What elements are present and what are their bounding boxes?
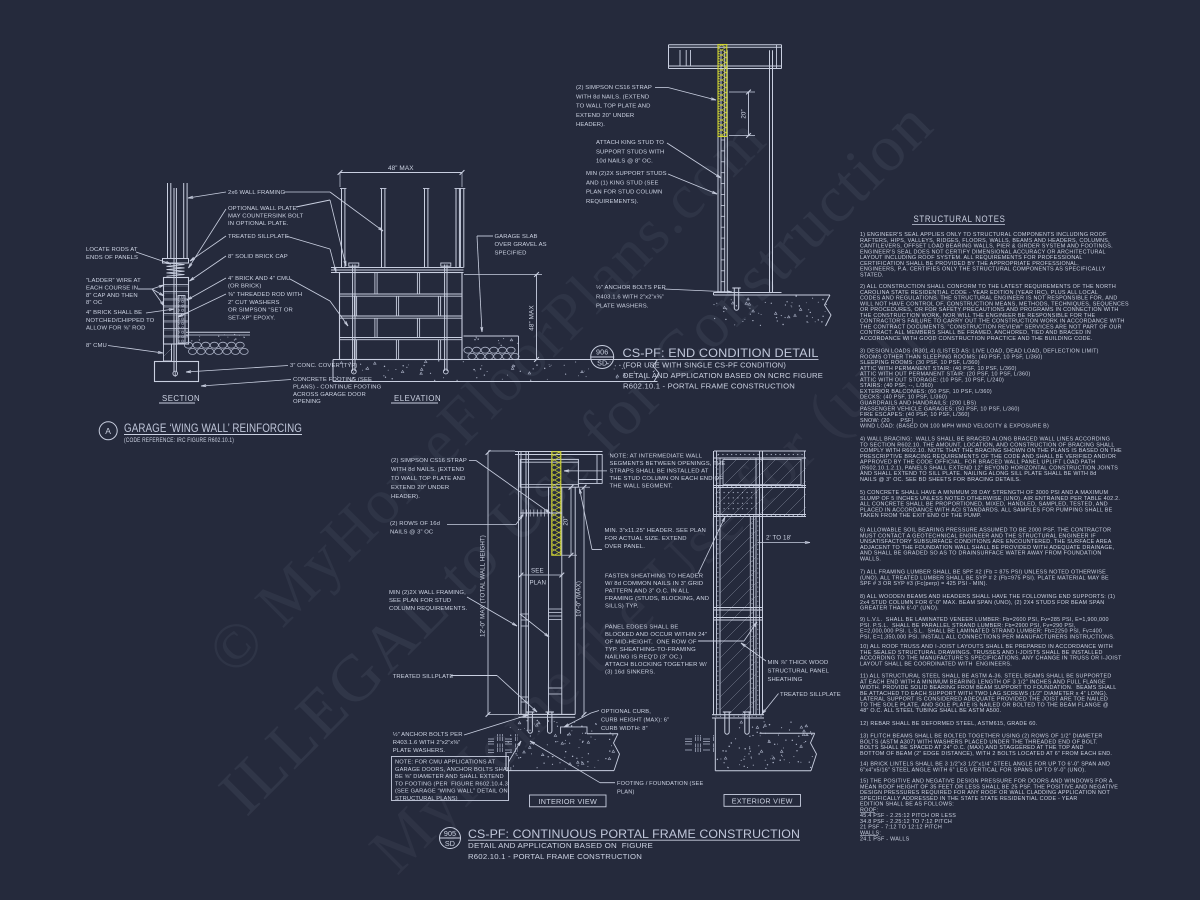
svg-text:(SEE GARAGE “WING WALL” DETAIL: (SEE GARAGE “WING WALL” DETAIL ON	[395, 789, 508, 795]
svg-text:24.1 PSF - WALLS: 24.1 PSF - WALLS	[860, 836, 910, 842]
svg-text:NOTE: FOR CMU APPLICATIONS AT: NOTE: FOR CMU APPLICATIONS AT	[395, 760, 496, 766]
svg-text:GARAGE SLAB: GARAGE SLAB	[495, 234, 538, 240]
svg-text:PATTERN AND 3” O.C. IN ALL: PATTERN AND 3” O.C. IN ALL	[605, 589, 690, 595]
svg-text:OF MID-HEIGHT. ONE ROW OF: OF MID-HEIGHT. ONE ROW OF	[605, 640, 697, 646]
svg-text:8” CMU: 8” CMU	[86, 343, 107, 349]
svg-text:ENDS OF PANELS: ENDS OF PANELS	[86, 255, 138, 261]
svg-text:MIN. 3”x11.25” HEADER. SEE PLA: MIN. 3”x11.25” HEADER. SEE PLAN	[605, 528, 706, 534]
svg-text:GREATER THAN 6'-0” (UNO).: GREATER THAN 6'-0” (UNO).	[860, 606, 939, 612]
svg-text:8” OC: 8” OC	[86, 300, 103, 306]
svg-text:(FOR USE WITH SINGLE CS-PF CON: (FOR USE WITH SINGLE CS-PF CONDITION)	[623, 361, 786, 370]
svg-text:TYP. SHEATHING-TO-FRAMING: TYP. SHEATHING-TO-FRAMING	[605, 647, 696, 653]
svg-text:“LADDER” WIRE AT: “LADDER” WIRE AT	[86, 278, 141, 284]
svg-text:STRAPS SHALL BE INSTALLED AT: STRAPS SHALL BE INSTALLED AT	[610, 469, 709, 475]
svg-text:48” O.C. ALL STEEL TUBING SHAL: 48” O.C. ALL STEEL TUBING SHALL BE ASTM …	[860, 708, 1001, 714]
svg-text:SD: SD	[597, 359, 607, 368]
svg-text:TREATED SILLPLATE: TREATED SILLPLATE	[393, 674, 454, 680]
svg-text:FRAMING (STUDS, BLOCKING, AND: FRAMING (STUDS, BLOCKING, AND	[605, 596, 709, 602]
svg-text:PLAN: PLAN	[530, 580, 547, 587]
svg-text:8” CAP AND THEN: 8” CAP AND THEN	[86, 293, 138, 299]
svg-text:NAILS @ 3” OC. SEE BD SHEETS F: NAILS @ 3” OC. SEE BD SHEETS FOR BRACING…	[860, 477, 1021, 483]
svg-text:48” MAX: 48” MAX	[529, 305, 536, 331]
svg-text:LAYOUT SHALL BE COORDINATED WI: LAYOUT SHALL BE COORDINATED WITH ENGINEE…	[860, 661, 1012, 667]
svg-text:THE WALL SEGMENT.: THE WALL SEGMENT.	[610, 484, 674, 490]
svg-text:FOOTING / FOUNDATION (SEE: FOOTING / FOUNDATION (SEE	[617, 781, 703, 787]
svg-text:COLUMN REQUIREMENTS.: COLUMN REQUIREMENTS.	[389, 606, 468, 612]
svg-text:TO WALL TOP PLATE AND: TO WALL TOP PLATE AND	[576, 104, 650, 110]
svg-text:(3) 16d SINKERS.: (3) 16d SINKERS.	[605, 670, 655, 676]
svg-text:8” SOLID BRICK CAP: 8” SOLID BRICK CAP	[228, 254, 288, 260]
svg-text:R403.1.6 WITH 2”x2”x⅜”: R403.1.6 WITH 2”x2”x⅜”	[596, 294, 664, 300]
svg-text:½” ANCHOR BOLTS PER: ½” ANCHOR BOLTS PER	[596, 284, 666, 291]
svg-text:EXTERIOR VIEW: EXTERIOR VIEW	[732, 796, 793, 805]
svg-text:SD: SD	[445, 839, 455, 848]
svg-text:CURB HEIGHT (MAX): 6”: CURB HEIGHT (MAX): 6”	[601, 717, 669, 723]
svg-text:PLATE WASHERS.: PLATE WASHERS.	[596, 304, 649, 310]
svg-text:OPTIONAL CURB,: OPTIONAL CURB,	[601, 709, 651, 715]
svg-text:OPTIONAL WALL PLATE.: OPTIONAL WALL PLATE.	[228, 206, 299, 212]
svg-text:4” BRICK SHALL BE: 4” BRICK SHALL BE	[86, 310, 142, 316]
svg-text:TAKEN FROM THE EXIT END OF THE: TAKEN FROM THE EXIT END OF THE PUMP.	[860, 513, 982, 519]
svg-text:CS-PF: CONTINUOUS PORTAL FRAME: CS-PF: CONTINUOUS PORTAL FRAME CONSTRUCT…	[468, 827, 800, 841]
svg-text:WITH 8d NAILS. (EXTEND: WITH 8d NAILS. (EXTEND	[391, 467, 464, 473]
svg-text:GARAGE DOORS, ANCHOR BOLTS SHA: GARAGE DOORS, ANCHOR BOLTS SHALL	[395, 767, 513, 773]
svg-text:SUPPORT STUDS WITH: SUPPORT STUDS WITH	[596, 149, 664, 155]
svg-text:ACCORDANCE WITH GOOD CONSTRUCT: ACCORDANCE WITH GOOD CONSTRUCTION PRACTI…	[860, 336, 1092, 342]
svg-text:4” BRICK AND 4” CMU: 4” BRICK AND 4” CMU	[228, 276, 290, 282]
svg-text:PLAN FOR STUD COLUMN: PLAN FOR STUD COLUMN	[586, 190, 662, 196]
svg-text:A: A	[105, 426, 111, 436]
svg-text:EXTEND 20” UNDER: EXTEND 20” UNDER	[391, 485, 449, 491]
svg-text:WITH 8d NAILS. (EXTEND: WITH 8d NAILS. (EXTEND	[576, 94, 649, 100]
svg-text:FASTEN SHEATHING TO HEADER: FASTEN SHEATHING TO HEADER	[605, 574, 703, 580]
svg-text:2” CUT WASHERS: 2” CUT WASHERS	[228, 300, 279, 306]
svg-text:PSI, E=1,350,000 PSI. INSTALL: PSI, E=1,350,000 PSI. INSTALL ALL CONNEC…	[860, 634, 1115, 640]
svg-text:IN OPTIONAL PLATE.: IN OPTIONAL PLATE.	[228, 221, 289, 227]
svg-text:6”x4”x5/16” STEEL ANGLE WITH 6: 6”x4”x5/16” STEEL ANGLE WITH 6” LEG VERT…	[860, 767, 1086, 773]
svg-text:(2) ROWS OF 16d: (2) ROWS OF 16d	[390, 521, 440, 527]
svg-text:NAILING IS REQ'D (3” OC.): NAILING IS REQ'D (3” OC.)	[605, 655, 682, 661]
svg-text:ACROSS GARAGE DOOR: ACROSS GARAGE DOOR	[293, 392, 366, 398]
svg-text:FOR ACTUAL SIZE. EXTEND: FOR ACTUAL SIZE. EXTEND	[605, 536, 687, 542]
svg-text:EACH COURSE IN: EACH COURSE IN	[86, 285, 138, 291]
svg-text:SECTION: SECTION	[162, 394, 200, 403]
svg-text:TREATED SILLPLATE: TREATED SILLPLATE	[780, 692, 841, 698]
svg-text:906: 906	[596, 348, 608, 357]
svg-text:3” CONC. COVER (TYP): 3” CONC. COVER (TYP)	[290, 363, 357, 369]
svg-text:SEE PLAN FOR STUD: SEE PLAN FOR STUD	[389, 598, 451, 604]
svg-text:BLOCKED AND OCCUR WITHIN 24”: BLOCKED AND OCCUR WITHIN 24”	[605, 632, 707, 638]
svg-text:MIN (2)2X SUPPORT STUDS: MIN (2)2X SUPPORT STUDS	[586, 171, 667, 177]
svg-text:R403.1.6 WITH 2”x2”x⅜”: R403.1.6 WITH 2”x2”x⅜”	[393, 740, 461, 746]
svg-text:SEE: SEE	[531, 568, 544, 575]
svg-text:AND (1) KING STUD (SEE: AND (1) KING STUD (SEE	[586, 180, 659, 186]
svg-text:STRUCTURAL NOTES: STRUCTURAL NOTES	[914, 214, 1006, 225]
svg-text:⅜” THREADED ROD WITH: ⅜” THREADED ROD WITH	[228, 292, 302, 298]
svg-text:STRUCTURAL PLANS): STRUCTURAL PLANS)	[395, 796, 458, 802]
svg-text:2x6 WALL FRAMING: 2x6 WALL FRAMING	[228, 190, 285, 196]
svg-text:MIN ⅞” THICK WOOD: MIN ⅞” THICK WOOD	[768, 660, 829, 666]
svg-text:2' TO 18': 2' TO 18'	[766, 535, 791, 542]
svg-text:MAY COUNTERSINK BOLT: MAY COUNTERSINK BOLT	[228, 214, 304, 220]
svg-text:SHEATHING: SHEATHING	[768, 677, 803, 683]
svg-text:CS-PF: END CONDITION DETAIL: CS-PF: END CONDITION DETAIL	[623, 346, 819, 360]
svg-text:TO FOOTING (PER FIGURE R602.1: TO FOOTING (PER FIGURE R602.10.4.3	[395, 781, 508, 787]
svg-text:OR SIMPSON “SET OR: OR SIMPSON “SET OR	[228, 308, 293, 314]
svg-text:ENGINEERS, P.A. CERTIFIES ONLY: ENGINEERS, P.A. CERTIFIES ONLY THE STRUC…	[860, 267, 1106, 273]
svg-text:10'-0” (MAX): 10'-0” (MAX)	[576, 581, 583, 617]
svg-text:R602.10.1 - PORTAL FRAME CONST: R602.10.1 - PORTAL FRAME CONSTRUCTION	[623, 381, 795, 390]
svg-text:MIN (2)2X WALL FRAMING,: MIN (2)2X WALL FRAMING,	[389, 590, 466, 596]
svg-text:OVER GRAVEL AS: OVER GRAVEL AS	[495, 242, 547, 248]
svg-text:R602.10.1 - PORTAL FRAME CONST: R602.10.1 - PORTAL FRAME CONSTRUCTION	[468, 852, 642, 861]
svg-text:(2) SIMPSON CS16 STRAP: (2) SIMPSON CS16 STRAP	[391, 458, 467, 464]
svg-text:ATTACH BLOCKING TOGETHER W/: ATTACH BLOCKING TOGETHER W/	[605, 662, 707, 668]
svg-text:20”: 20”	[741, 109, 748, 118]
svg-text:48” MAX: 48” MAX	[388, 165, 414, 172]
svg-text:20”: 20”	[563, 516, 570, 525]
svg-text:CURB WIDTH: 8”: CURB WIDTH: 8”	[601, 726, 648, 732]
svg-text:ELEVATION: ELEVATION	[394, 394, 441, 403]
svg-text:SPECIFIED: SPECIFIED	[495, 250, 527, 256]
svg-text:HEADER).: HEADER).	[576, 122, 605, 128]
svg-text:BE ⅝” DIAMETER AND SHALL EXTEN: BE ⅝” DIAMETER AND SHALL EXTEND	[395, 774, 504, 780]
svg-text:STATED.: STATED.	[860, 273, 884, 279]
svg-text:(CODE REFERENCE: IRC FIGURE R6: (CODE REFERENCE: IRC FIGURE R602.10.1)	[124, 438, 234, 444]
svg-text:WALLS.: WALLS.	[860, 556, 881, 562]
svg-text:NOTCHED/CHIPPED TO: NOTCHED/CHIPPED TO	[86, 318, 155, 324]
svg-text:PLAN): PLAN)	[617, 789, 635, 795]
svg-text:OPENING: OPENING	[293, 399, 321, 405]
svg-text:SET-XP” EPOXY.: SET-XP” EPOXY.	[228, 315, 275, 321]
svg-text:SPF # 3 OR SYP #3 (Fc(perp) =: SPF # 3 OR SYP #3 (Fc(perp) = 425 PSI - …	[860, 581, 987, 587]
svg-text:LOCATE RODS AT: LOCATE RODS AT	[86, 247, 138, 253]
svg-text:INTERIOR VIEW: INTERIOR VIEW	[538, 797, 597, 806]
svg-text:PANEL EDGES SHALL BE: PANEL EDGES SHALL BE	[605, 625, 679, 631]
svg-text:PLANS) - CONTINUE FOOTING: PLANS) - CONTINUE FOOTING	[293, 384, 382, 390]
svg-text:BOTTOM OF BEAM (2” EDGE DISTAN: BOTTOM OF BEAM (2” EDGE DISTANCE), WITH …	[860, 751, 1112, 757]
svg-text:½” ANCHOR BOLTS PER: ½” ANCHOR BOLTS PER	[393, 731, 463, 738]
svg-text:10d NAILS @ 8” OC.: 10d NAILS @ 8” OC.	[596, 159, 653, 165]
svg-text:THE STUD COLUMN ON EACH END OF: THE STUD COLUMN ON EACH END OF	[610, 476, 724, 482]
svg-text:EXTEND 20” UNDER: EXTEND 20” UNDER	[576, 113, 634, 119]
svg-text:NAILS @ 3” OC: NAILS @ 3” OC	[390, 529, 434, 535]
svg-text:ALLOW FOR ⅝” ROD: ALLOW FOR ⅝” ROD	[86, 326, 146, 332]
svg-text:DETAIL AND APPLICATION BASED O: DETAIL AND APPLICATION BASED ON FIGURE	[468, 841, 653, 850]
svg-text:ATTACH KING STUD TO: ATTACH KING STUD TO	[596, 140, 664, 146]
svg-text:REQUIREMENTS).: REQUIREMENTS).	[586, 199, 639, 205]
svg-text:TO WALL TOP PLATE AND: TO WALL TOP PLATE AND	[391, 476, 465, 482]
svg-text:(OR BRICK): (OR BRICK)	[228, 284, 261, 290]
svg-text:(2) SIMPSON CS16 STRAP: (2) SIMPSON CS16 STRAP	[576, 85, 652, 91]
svg-text:WIND LOAD: (BASED ON 100 MPH W: WIND LOAD: (BASED ON 100 MPH WIND VELOCI…	[860, 424, 1049, 430]
svg-text:905: 905	[444, 829, 456, 838]
svg-text:SILLS) TYP.: SILLS) TYP.	[605, 604, 639, 610]
svg-text:NOTE: AT INTERMEDIATE WALL: NOTE: AT INTERMEDIATE WALL	[610, 454, 703, 460]
svg-text:PLATE WASHERS.: PLATE WASHERS.	[393, 748, 446, 754]
svg-text:SEGMENTS BETWEEN OPENINGS, THE: SEGMENTS BETWEEN OPENINGS, THE	[610, 461, 726, 467]
svg-text:12) REBAR SHALL BE DEFORMED ST: 12) REBAR SHALL BE DEFORMED STEEL, ASTM6…	[860, 721, 1037, 727]
svg-text:12'-0” MAX (TOTAL WALL HEIGHT): 12'-0” MAX (TOTAL WALL HEIGHT)	[480, 535, 487, 637]
svg-text:GARAGE ‘WING WALL’ REINFORCING: GARAGE ‘WING WALL’ REINFORCING	[124, 422, 302, 435]
svg-text:TREATED SILLPLATE: TREATED SILLPLATE	[228, 234, 289, 240]
svg-text:W/ 8d COMMON NAILS IN 3” GRID: W/ 8d COMMON NAILS IN 3” GRID	[605, 581, 703, 587]
svg-text:AND SHALL BE GRADED SO AS TO D: AND SHALL BE GRADED SO AS TO DRAINSURFAC…	[860, 551, 1102, 557]
svg-text:OVER PANEL.: OVER PANEL.	[605, 544, 646, 550]
svg-text:DETAIL AND APPLICATION BASED O: DETAIL AND APPLICATION BASED ON NCRC FIG…	[623, 371, 823, 380]
svg-text:STRUCTURAL PANEL: STRUCTURAL PANEL	[768, 668, 830, 674]
svg-text:HEADER).: HEADER).	[391, 494, 420, 500]
